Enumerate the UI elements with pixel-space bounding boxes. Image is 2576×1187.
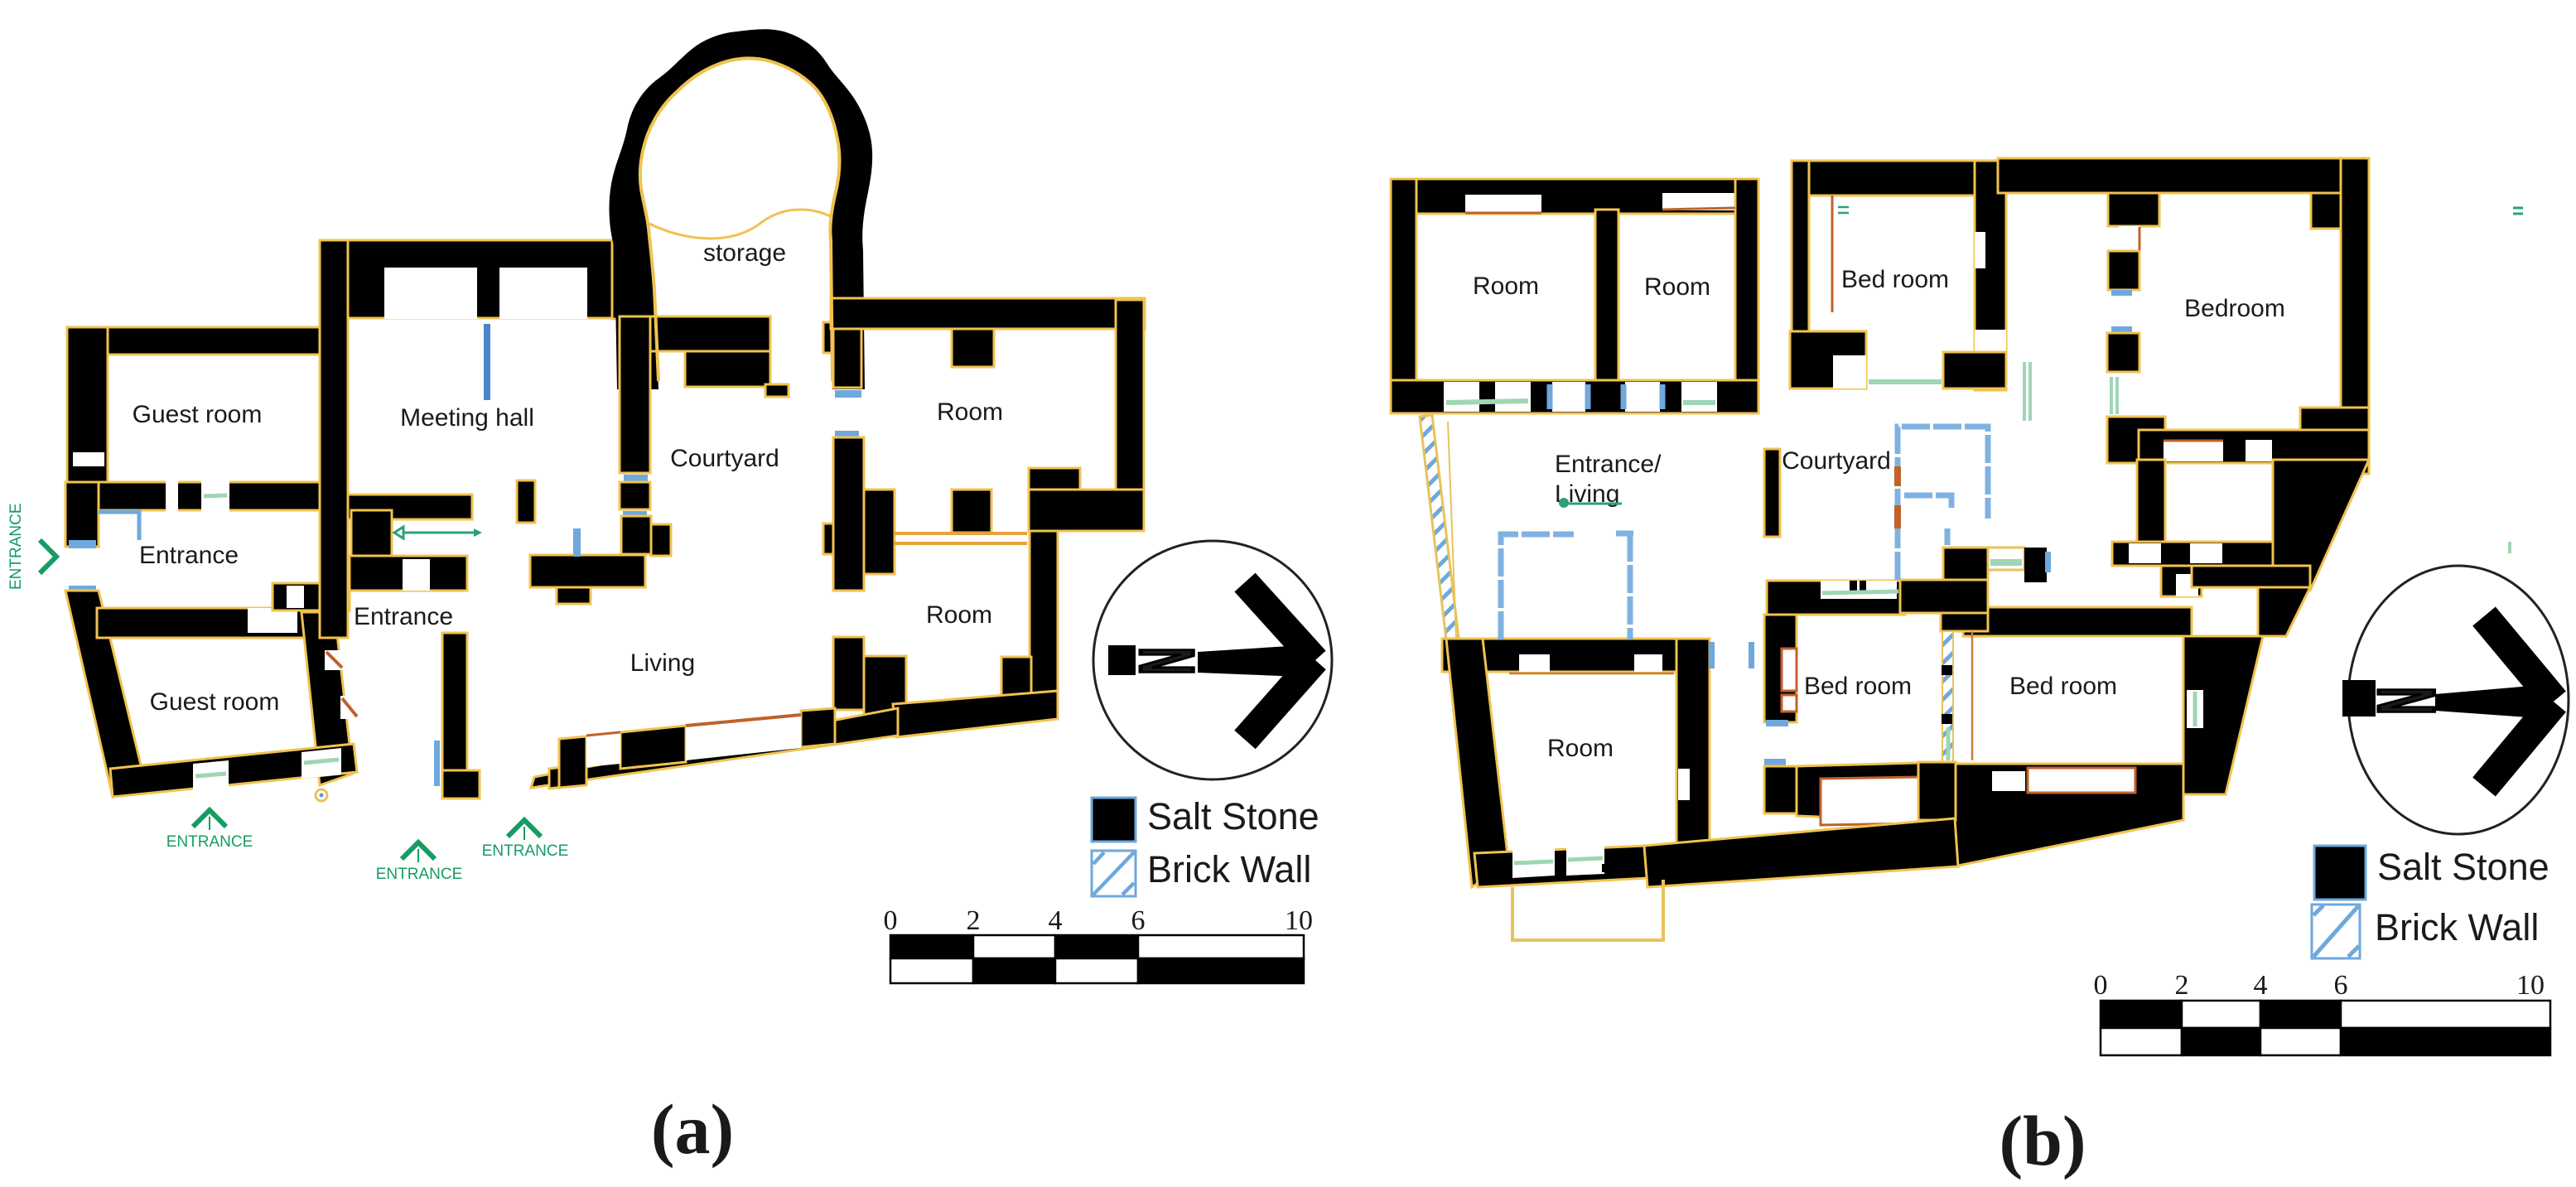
svg-text:2: 2 xyxy=(2175,970,2189,1001)
svg-text:Salt Stone: Salt Stone xyxy=(1147,795,1319,837)
svg-text:2: 2 xyxy=(967,905,981,936)
svg-text:Guest room: Guest room xyxy=(133,401,263,428)
svg-text:Bed room: Bed room xyxy=(2009,673,2117,700)
svg-text:Brick Wall: Brick Wall xyxy=(1147,848,1311,890)
svg-text:4: 4 xyxy=(2254,970,2268,1001)
svg-text:Salt Stone: Salt Stone xyxy=(2377,846,2549,888)
svg-text:Entrance: Entrance xyxy=(139,542,239,569)
svg-text:Room: Room xyxy=(1644,273,1710,301)
svg-text:Entrance: Entrance xyxy=(354,603,453,630)
svg-text:Entrance/: Entrance/ xyxy=(1555,451,1662,478)
svg-text:Room: Room xyxy=(926,601,992,629)
svg-text:Bed room: Bed room xyxy=(1804,673,1912,700)
svg-text:Living: Living xyxy=(630,649,695,677)
svg-text:Courtyard: Courtyard xyxy=(670,445,779,472)
svg-text:N: N xyxy=(1124,647,1208,674)
svg-text:ENTRANCE: ENTRANCE xyxy=(7,503,25,590)
svg-text:6: 6 xyxy=(2334,970,2348,1001)
svg-text:6: 6 xyxy=(1131,905,1146,936)
svg-text:4: 4 xyxy=(1049,905,1063,936)
svg-text:Room: Room xyxy=(937,398,1003,426)
svg-text:ENTRANCE: ENTRANCE xyxy=(376,866,463,883)
svg-text:Room: Room xyxy=(1547,735,1614,762)
svg-text:Room: Room xyxy=(1473,273,1539,300)
svg-text:Brick Wall: Brick Wall xyxy=(2375,906,2539,948)
svg-text:Meeting hall: Meeting hall xyxy=(400,404,534,432)
svg-text:Bedroom: Bedroom xyxy=(2184,295,2285,322)
svg-text:0: 0 xyxy=(884,905,898,936)
svg-text:ENTRANCE: ENTRANCE xyxy=(166,833,253,851)
svg-text:10: 10 xyxy=(1285,905,1313,936)
svg-text:10: 10 xyxy=(2516,970,2545,1001)
svg-text:Courtyard: Courtyard xyxy=(1782,447,1891,475)
svg-text:(b): (b) xyxy=(1999,1101,2086,1180)
svg-text:Guest room: Guest room xyxy=(150,688,280,716)
svg-text:0: 0 xyxy=(2094,970,2108,1001)
svg-text:ENTRANCE: ENTRANCE xyxy=(482,842,569,860)
svg-text:Bed room: Bed room xyxy=(1841,266,1949,293)
svg-text:(a): (a) xyxy=(651,1089,734,1169)
svg-text:storage: storage xyxy=(703,239,786,267)
